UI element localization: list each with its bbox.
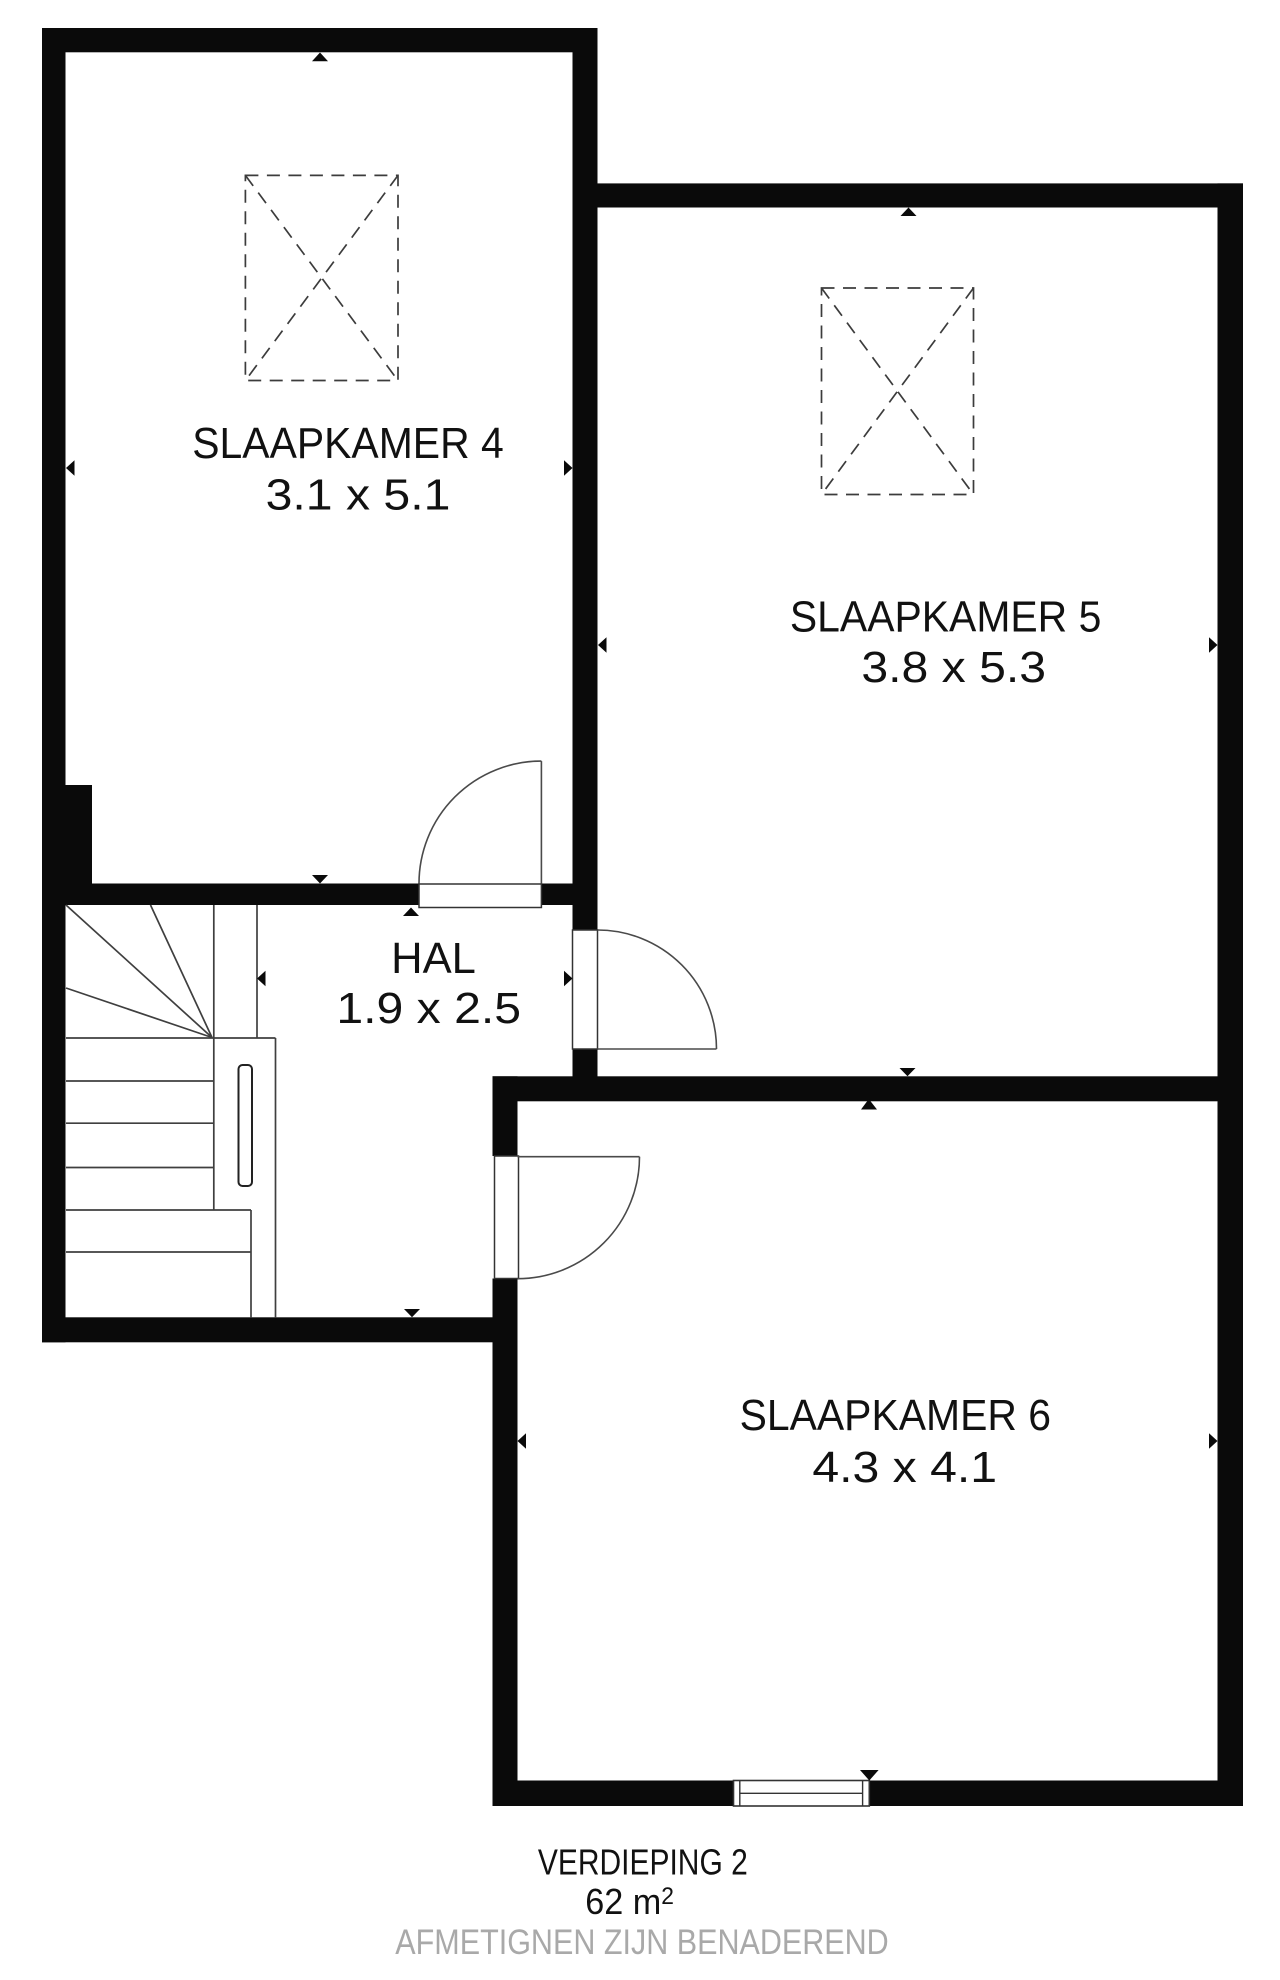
svg-text:3.1 x 5.1: 3.1 x 5.1	[266, 469, 451, 519]
svg-text:SLAAPKAMER 4: SLAAPKAMER 4	[192, 420, 503, 469]
svg-text:HAL: HAL	[391, 934, 476, 983]
svg-text:SLAAPKAMER 6: SLAAPKAMER 6	[740, 1392, 1051, 1441]
svg-text:VERDIEPING 2: VERDIEPING 2	[538, 1843, 748, 1883]
svg-text:AFMETIGNEN ZIJN BENADEREND: AFMETIGNEN ZIJN BENADEREND	[395, 1923, 888, 1963]
svg-text:4.3 x 4.1: 4.3 x 4.1	[812, 1442, 997, 1492]
svg-text:SLAAPKAMER 5: SLAAPKAMER 5	[790, 593, 1101, 642]
svg-text:3.8 x 5.3: 3.8 x 5.3	[861, 642, 1046, 692]
svg-text:1.9 x 2.5: 1.9 x 2.5	[336, 983, 521, 1033]
svg-text:62 m2: 62 m2	[585, 1882, 674, 1922]
